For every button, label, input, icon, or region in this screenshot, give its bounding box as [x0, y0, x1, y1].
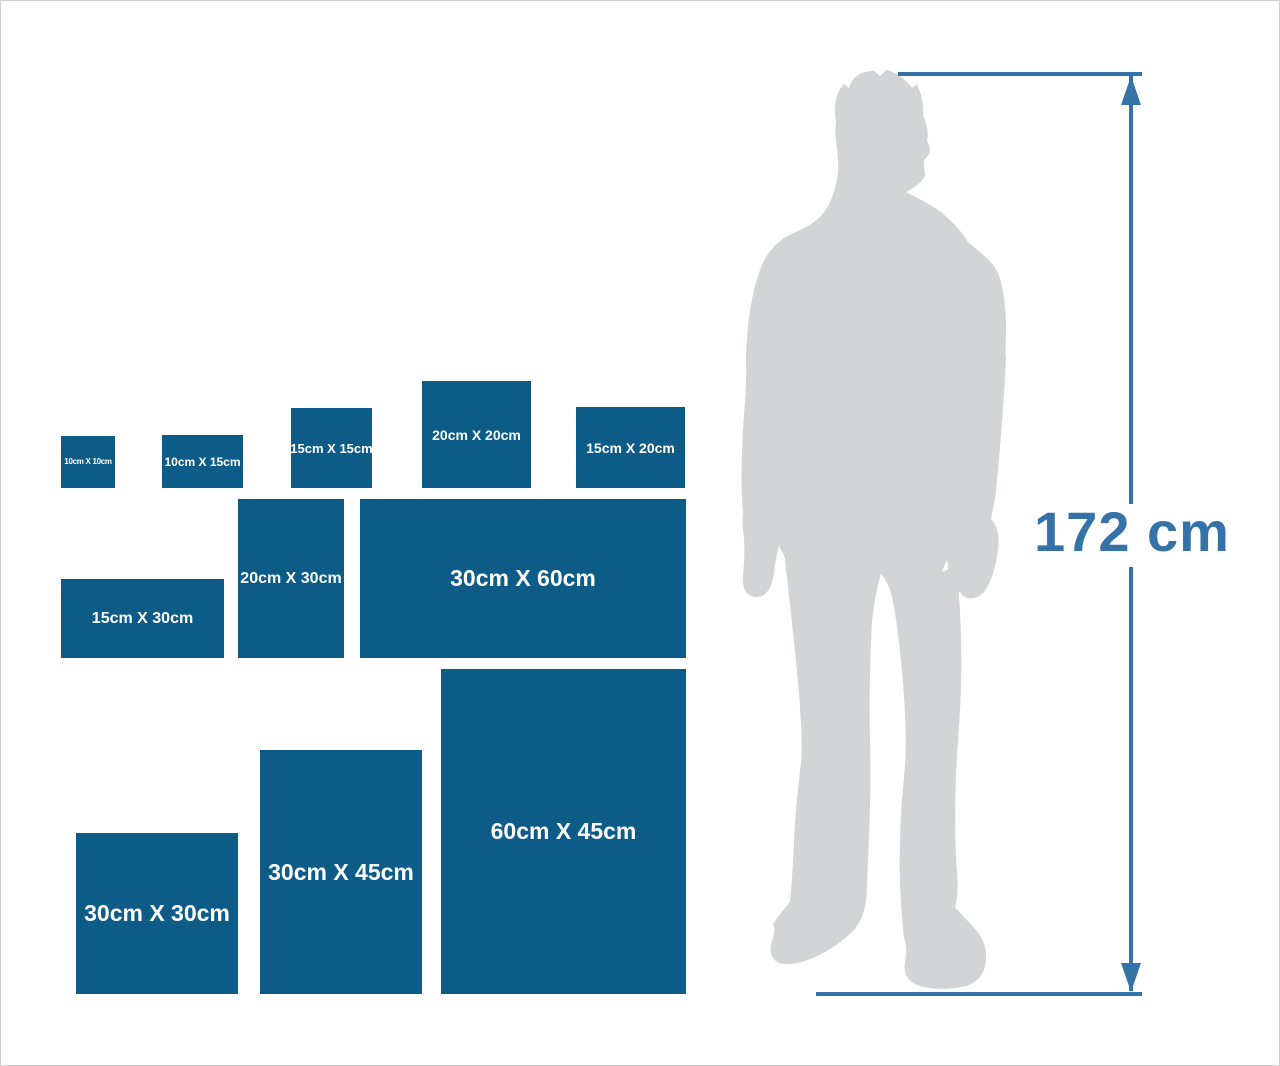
size-comparison-canvas: 10cm X 10cm 10cm X 15cm 15cm X 15cm 20cm…	[0, 0, 1280, 1066]
size-box-15x15: 15cm X 15cm	[291, 408, 372, 488]
size-box-15x30: 15cm X 30cm	[61, 579, 224, 658]
size-box-20x20: 20cm X 20cm	[422, 381, 531, 488]
person-silhouette	[742, 70, 1006, 989]
measure-line-top	[898, 72, 1142, 76]
arrow-up-icon	[1121, 76, 1141, 105]
size-box-15x20: 15cm X 20cm	[576, 407, 685, 488]
size-box-30x45: 30cm X 45cm	[260, 750, 422, 994]
measure-line-bottom	[816, 992, 1142, 996]
size-box-10x10: 10cm X 10cm	[61, 436, 115, 488]
measure-line-vertical-upper	[1129, 76, 1133, 504]
size-box-10x15: 10cm X 15cm	[162, 435, 243, 488]
size-box-60x45: 60cm X 45cm	[441, 669, 686, 994]
size-box-20x30: 20cm X 30cm	[238, 499, 344, 658]
arrow-down-icon	[1121, 963, 1141, 992]
size-box-30x30: 30cm X 30cm	[76, 833, 238, 994]
measure-line-vertical-lower	[1129, 567, 1133, 991]
height-label: 172 cm	[1022, 504, 1242, 560]
size-box-30x60: 30cm X 60cm	[360, 499, 686, 658]
